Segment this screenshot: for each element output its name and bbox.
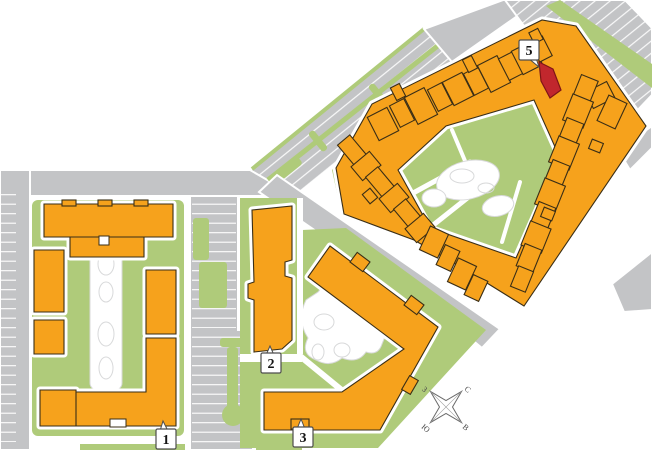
building-1-bump xyxy=(134,200,148,206)
building-1-top-bar[interactable] xyxy=(44,204,173,237)
site-map: 1 2 3 5 С З Ю В xyxy=(0,0,652,450)
compass-north-label: С xyxy=(463,384,473,394)
walkway xyxy=(297,198,303,354)
building-1-notch xyxy=(99,236,109,245)
building-1-bump xyxy=(62,200,76,206)
label-number: 1 xyxy=(163,433,170,448)
left-parking-ticks xyxy=(0,190,16,442)
label-number: 3 xyxy=(300,431,307,446)
road-bottom-right xyxy=(612,252,652,312)
building-1-right-wing[interactable] xyxy=(146,270,176,334)
site-map-svg: 1 2 3 5 С З Ю В xyxy=(0,0,652,450)
label-number: 2 xyxy=(268,357,275,372)
label-number: 5 xyxy=(526,44,533,59)
building-1-bottom-left[interactable] xyxy=(40,390,76,426)
courtyard-5-pond xyxy=(422,189,446,207)
building-1-left-wing[interactable] xyxy=(34,250,64,312)
parking-median xyxy=(193,218,209,260)
building-1-bump xyxy=(98,200,112,206)
building-2[interactable] xyxy=(248,206,292,352)
building-1-notch xyxy=(110,419,126,427)
compass-east-label: В xyxy=(461,422,471,432)
building-1-left-wing[interactable] xyxy=(34,320,64,354)
courtyard-1-walk xyxy=(90,244,122,390)
parking-median xyxy=(199,262,227,308)
compass-south-label: Ю xyxy=(420,422,432,434)
parking-median xyxy=(227,347,238,409)
building-2-slab[interactable] xyxy=(248,206,292,352)
